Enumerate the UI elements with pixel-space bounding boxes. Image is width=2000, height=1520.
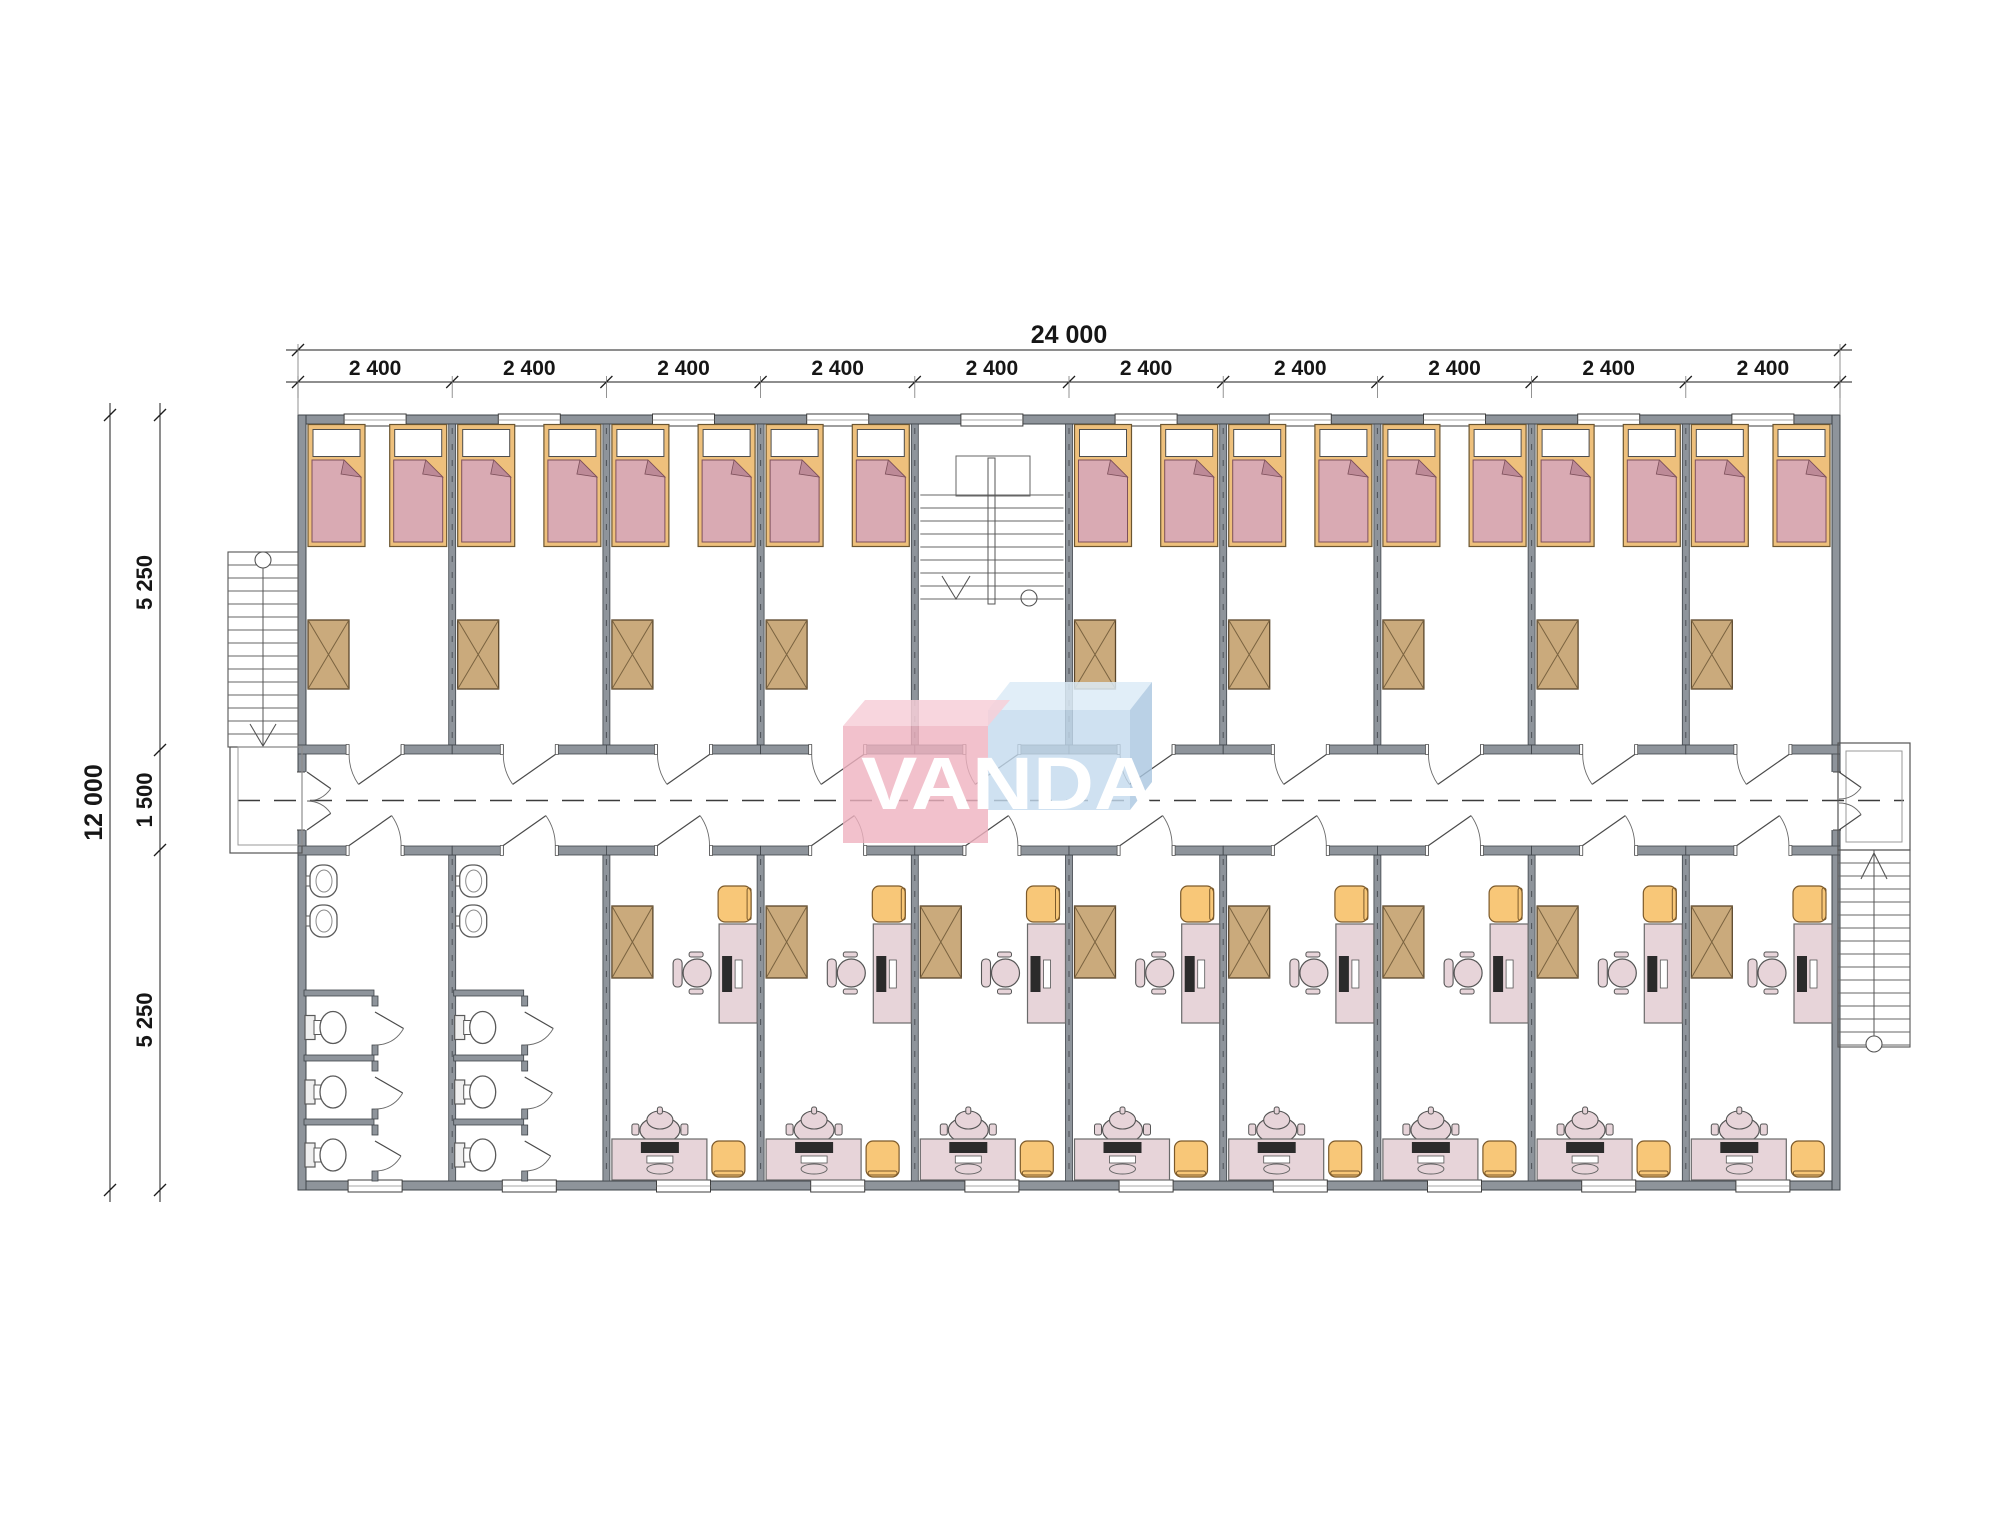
office-bay-9 — [1537, 886, 1682, 1180]
office-bay-6 — [1075, 886, 1220, 1180]
floor-plan: 24 0002 4002 4002 4002 4002 4002 4002 40… — [0, 0, 2000, 1520]
dim-bay-6: 2 400 — [1120, 357, 1173, 380]
office-bay-4 — [766, 886, 911, 1180]
dim-bay-5: 2 400 — [966, 357, 1019, 380]
bedroom-bay-6 — [1075, 425, 1218, 690]
office-bay-7 — [1229, 886, 1374, 1180]
bedroom-bay-10 — [1691, 425, 1830, 690]
dim-bay-4: 2 400 — [811, 357, 864, 380]
logo-blue-box-top — [988, 682, 1152, 710]
central-stairwell — [920, 456, 1063, 606]
dim-seg-upper: 5 250 — [132, 555, 157, 610]
bedroom-bay-1 — [308, 425, 447, 690]
floor-plan-canvas: 24 0002 4002 4002 4002 4002 4002 4002 40… — [0, 0, 2000, 1520]
logo-text: VANDA — [861, 742, 1155, 825]
office-bay-5 — [920, 886, 1065, 1180]
dim-seg-corridor: 1 500 — [132, 772, 157, 827]
dim-bay-3: 2 400 — [657, 357, 710, 380]
dim-bay-10: 2 400 — [1737, 357, 1790, 380]
right-exterior-stair — [1838, 743, 1910, 1052]
dim-total-height: 12 000 — [80, 764, 108, 840]
bedroom-bay-7 — [1229, 425, 1372, 690]
bedroom-bay-8 — [1383, 425, 1526, 690]
dim-total-width: 24 000 — [1031, 321, 1107, 349]
office-bay-10 — [1691, 886, 1832, 1180]
office-bay-3 — [612, 886, 757, 1180]
logo-pink-box-top — [843, 700, 1010, 726]
dim-bay-7: 2 400 — [1274, 357, 1327, 380]
bedroom-bay-9 — [1537, 425, 1680, 690]
bedroom-bay-4 — [766, 425, 909, 690]
bathroom-bay-2 — [454, 865, 554, 1181]
bathroom-bay-1 — [304, 865, 404, 1181]
dim-bay-1: 2 400 — [349, 357, 402, 380]
vanda-logo: VANDA — [843, 682, 1155, 843]
left-exterior-stair — [228, 552, 331, 853]
bedroom-bay-2 — [458, 425, 601, 690]
office-bay-8 — [1383, 886, 1528, 1180]
dim-bay-8: 2 400 — [1428, 357, 1481, 380]
dim-seg-lower: 5 250 — [132, 992, 157, 1047]
dim-bay-9: 2 400 — [1582, 357, 1635, 380]
dim-bay-2: 2 400 — [503, 357, 556, 380]
bedroom-bay-3 — [612, 425, 755, 690]
